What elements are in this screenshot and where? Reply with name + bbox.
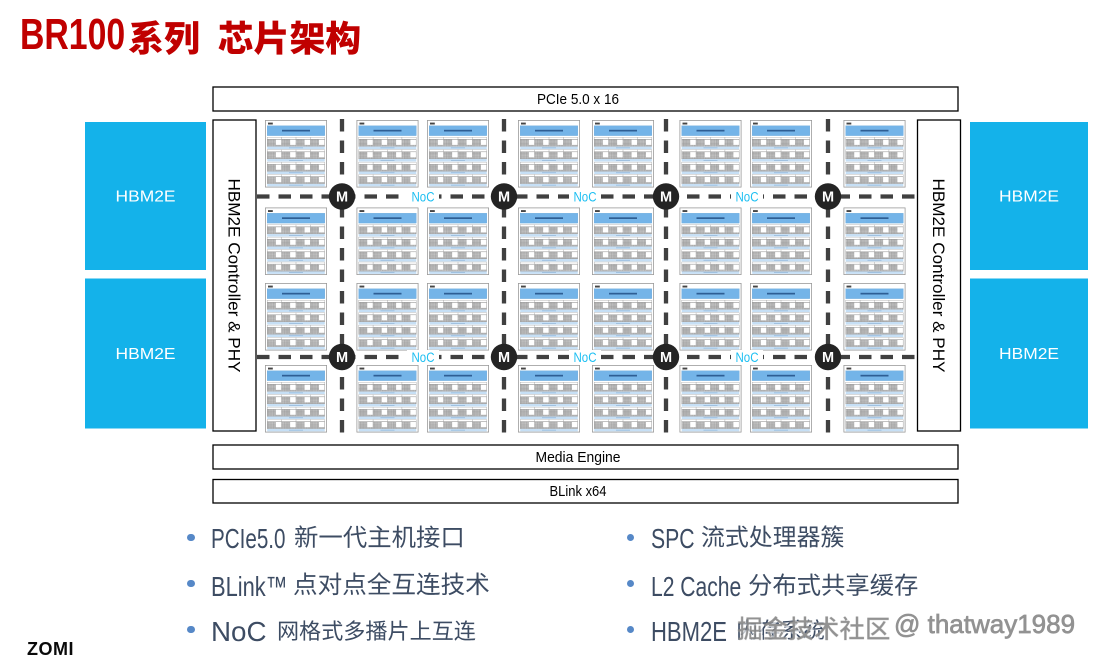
svg-text:HBM2E: HBM2E: [116, 346, 176, 363]
svg-text:NoC: NoC: [736, 189, 759, 204]
svg-text:M: M: [660, 350, 672, 366]
svg-text:M: M: [660, 190, 672, 206]
svg-text:M: M: [336, 350, 348, 366]
svg-text:Media Engine: Media Engine: [536, 449, 621, 466]
svg-text:HBM2E Controller & PHY: HBM2E Controller & PHY: [929, 179, 948, 373]
svg-text:M: M: [498, 350, 510, 366]
svg-text:NoC: NoC: [736, 350, 759, 365]
svg-text:M: M: [336, 190, 348, 206]
svg-text:M: M: [822, 350, 834, 366]
svg-text:HBM2E: HBM2E: [999, 189, 1059, 206]
svg-text:BLink x64: BLink x64: [550, 483, 607, 500]
svg-text:NoC: NoC: [574, 189, 597, 204]
svg-text:M: M: [498, 190, 510, 206]
svg-text:HBM2E: HBM2E: [999, 346, 1059, 363]
svg-text:HBM2E Controller & PHY: HBM2E Controller & PHY: [225, 179, 244, 373]
svg-text:NoC: NoC: [412, 189, 435, 204]
svg-text:NoC: NoC: [412, 350, 435, 365]
svg-text:HBM2E: HBM2E: [116, 189, 176, 206]
svg-text:NoC: NoC: [574, 350, 597, 365]
svg-text:M: M: [822, 190, 834, 206]
svg-text:PCIe 5.0 x 16: PCIe 5.0 x 16: [537, 91, 619, 108]
